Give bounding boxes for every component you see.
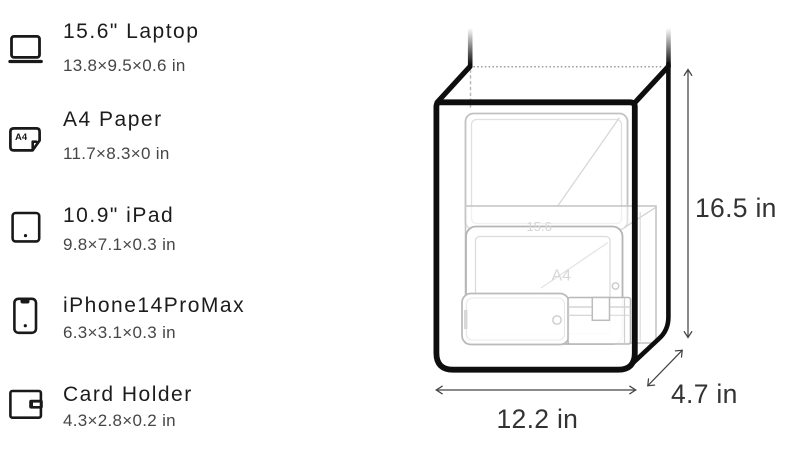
svg-text:A4: A4 xyxy=(552,268,572,285)
svg-text:15.6: 15.6 xyxy=(527,219,552,234)
